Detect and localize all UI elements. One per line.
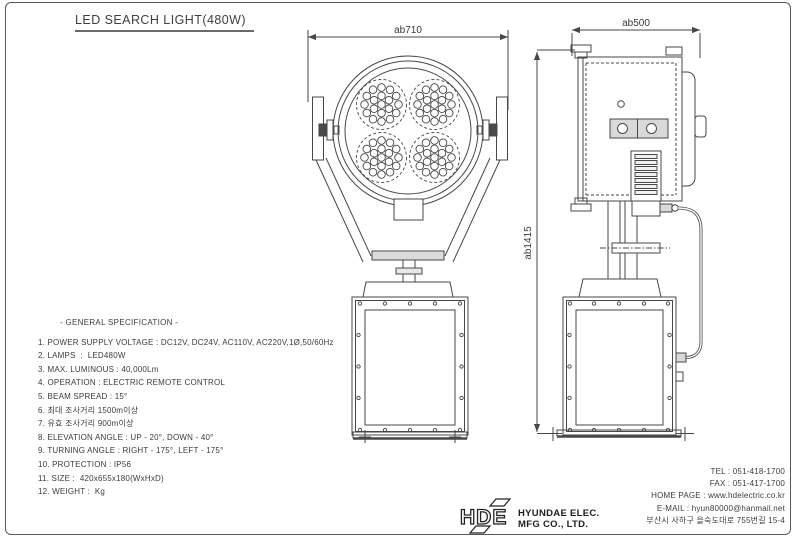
front-head-junction-box: [394, 199, 423, 220]
company-name-line2: MFG CO., LTD.: [518, 519, 600, 530]
dimension-front-width: [308, 30, 508, 110]
contact-fax: FAX : 051-417-1700: [646, 478, 785, 490]
contact-tel: TEL : 051-418-1700: [646, 466, 785, 478]
dimension-side-depth: [572, 30, 700, 58]
cable-gland: [660, 204, 672, 212]
spec-item-lamps: 2. LAMPS : LED480W: [38, 349, 334, 363]
front-pedestal-box: [352, 297, 468, 443]
front-yoke: [313, 97, 508, 262]
side-view: [537, 30, 706, 441]
spec-item-luminous: 3. MAX. LUMINOUS : 40,000Lm: [38, 363, 334, 377]
side-lamp-head: [571, 45, 706, 253]
side-pedestal: [544, 279, 694, 441]
spec-item-beam-spread: 5. BEAM SPREAD : 15°: [38, 390, 334, 404]
spec-item-size: 11. SIZE : 420x655x180(WxHxD): [38, 472, 334, 486]
spec-block: - GENERAL SPECIFICATION - 1. POWER SUPPL…: [38, 316, 334, 499]
spec-item-protection: 10. PROTECTION : IP56: [38, 458, 334, 472]
spec-heading: - GENERAL SPECIFICATION -: [60, 316, 334, 330]
company-name: HYUNDAE ELEC. MFG CO., LTD.: [518, 508, 600, 530]
front-lamp-head: [333, 56, 483, 206]
company-name-line1: HYUNDAE ELEC.: [518, 508, 600, 519]
contact-address: 부산시 사하구 을숙도대로 755번길 15-4: [646, 515, 785, 527]
side-handle: [695, 116, 706, 137]
contact-homepage: HOME PAGE : www.hdelectric.co.kr: [646, 490, 785, 502]
spec-item-weight: 12. WEIGHT : Kg: [38, 485, 334, 499]
spec-item-operation: 4. OPERATION : ELECTRIC REMOTE CONTROL: [38, 376, 334, 390]
spec-item-elevation: 8. ELEVATION ANGLE : UP - 20°, DOWN - 40…: [38, 431, 334, 445]
fin-slats: [635, 155, 657, 195]
company-logo-block: HDE HYUNDAE ELEC. MFG CO., LTD.: [458, 497, 600, 535]
spec-item-power: 1. POWER SUPPLY VOLTAGE : DC12V, DC24V, …: [38, 336, 334, 350]
front-pedestal-neck: [363, 251, 453, 297]
power-cable: [674, 208, 701, 381]
dimension-label-side-depth: ab500: [622, 18, 650, 29]
contact-block: TEL : 051-418-1700 FAX : 051-417-1700 HO…: [646, 466, 785, 527]
front-view: [308, 30, 508, 443]
contact-email: E-MAIL : hyun80000@hanmail.net: [646, 503, 785, 515]
dimension-label-side-height: ab1415: [523, 226, 534, 260]
company-logo-text: HDE: [460, 506, 507, 529]
side-back-cover: [682, 72, 695, 186]
dimension-label-front-width: ab710: [394, 25, 422, 36]
spec-item-max-range: 6. 최대 조사거리 1500m이상: [38, 404, 334, 418]
spec-item-turning: 9. TURNING ANGLE : RIGHT - 175°, LEFT - …: [38, 444, 334, 458]
led-clusters: [357, 80, 460, 183]
spec-item-effective-range: 7. 유효 조사거리 900m이상: [38, 417, 334, 431]
company-logo-icon: HDE: [458, 497, 516, 535]
